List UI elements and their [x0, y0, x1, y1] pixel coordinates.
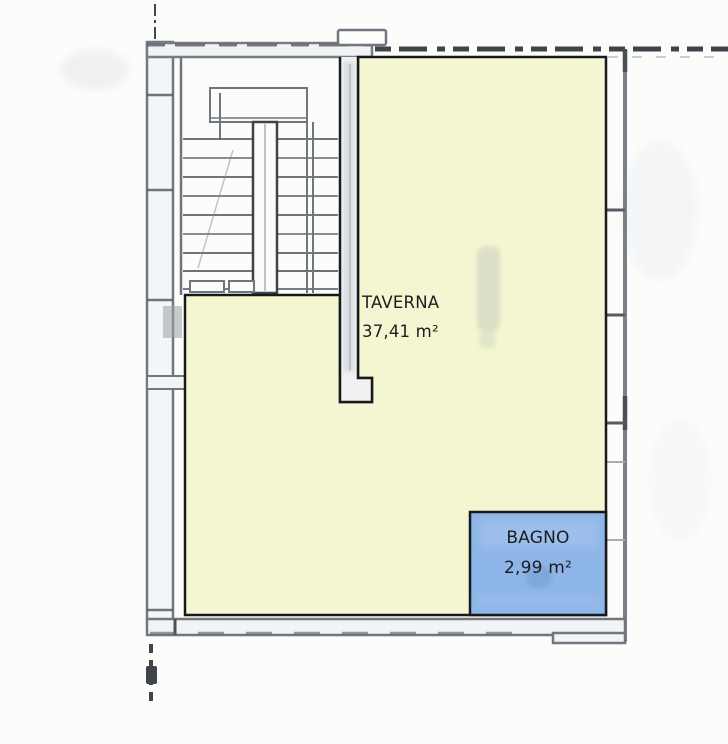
bagno-area-label: 2,99 m² — [504, 558, 572, 578]
floor-plan-page: TAVERNA 37,41 m² BAGNO 2,99 m² — [0, 0, 728, 744]
faded-marking-body — [477, 246, 500, 332]
chimney-block — [338, 30, 386, 45]
scan-smudge — [650, 420, 710, 540]
section-marker-blob — [146, 666, 157, 684]
wall-stub-left — [147, 376, 185, 389]
stair-threshold-mark — [190, 281, 224, 292]
scan-smudge — [61, 50, 129, 90]
bagno-name-label: BAGNO — [506, 528, 569, 548]
taverna-area-label: 37,41 m² — [362, 322, 439, 341]
wall-pilaster-block — [163, 306, 182, 338]
stair-threshold-mark — [229, 281, 254, 292]
scan-smudge — [622, 140, 698, 280]
faded-marking-tail — [479, 332, 496, 348]
bottom-wall-jog — [553, 633, 625, 643]
bagno-light-streak — [476, 594, 600, 608]
taverna-name-label: TAVERNA — [361, 293, 440, 312]
floor-plan-drawing: TAVERNA 37,41 m² BAGNO 2,99 m² — [0, 0, 728, 744]
